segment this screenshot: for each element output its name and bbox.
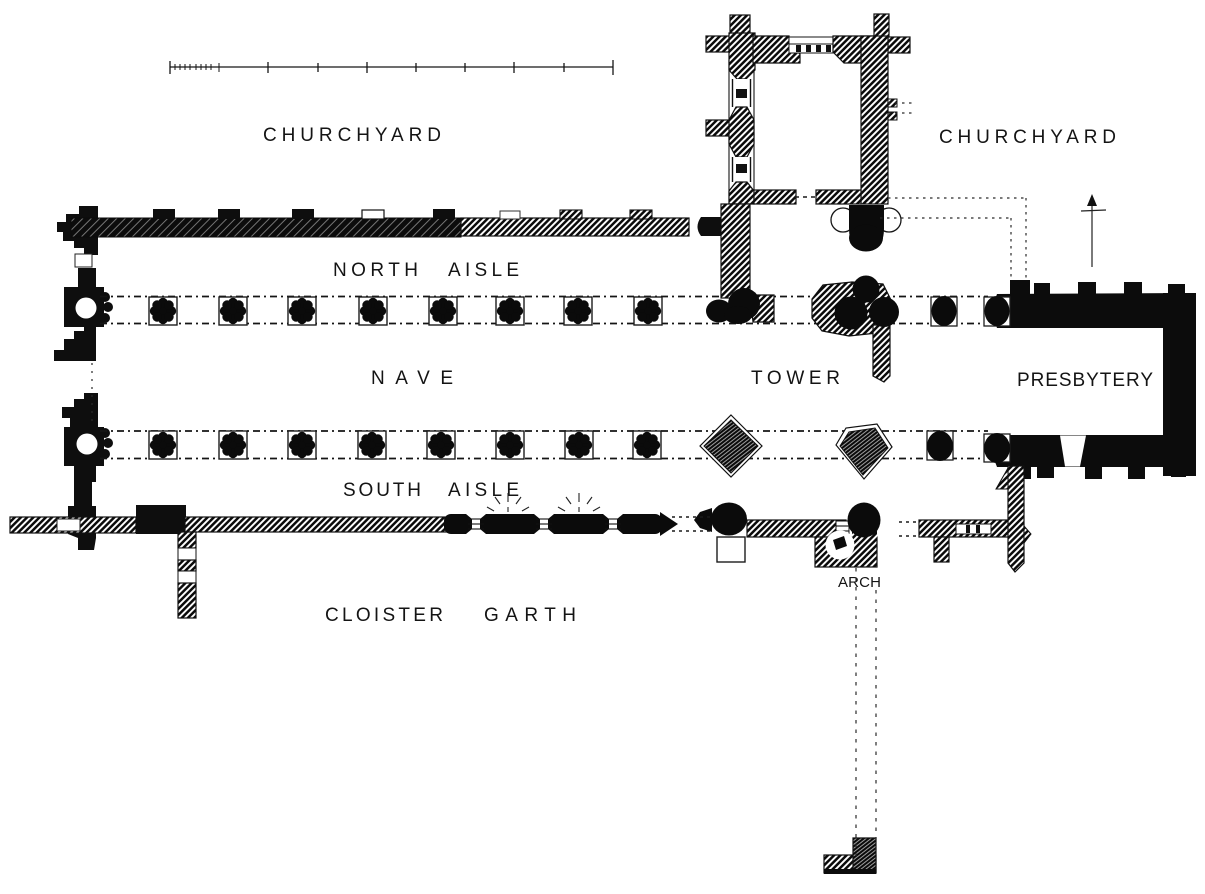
svg-text:GARTH: GARTH bbox=[484, 605, 576, 626]
svg-text:ARCH: ARCH bbox=[838, 574, 881, 591]
svg-text:CLOISTER: CLOISTER bbox=[325, 605, 443, 626]
svg-text:SOUTH: SOUTH bbox=[343, 480, 421, 501]
svg-text:AISLE: AISLE bbox=[448, 260, 519, 281]
svg-text:PRESBYTERY: PRESBYTERY bbox=[1017, 370, 1153, 391]
svg-text:NORTH: NORTH bbox=[333, 260, 418, 281]
